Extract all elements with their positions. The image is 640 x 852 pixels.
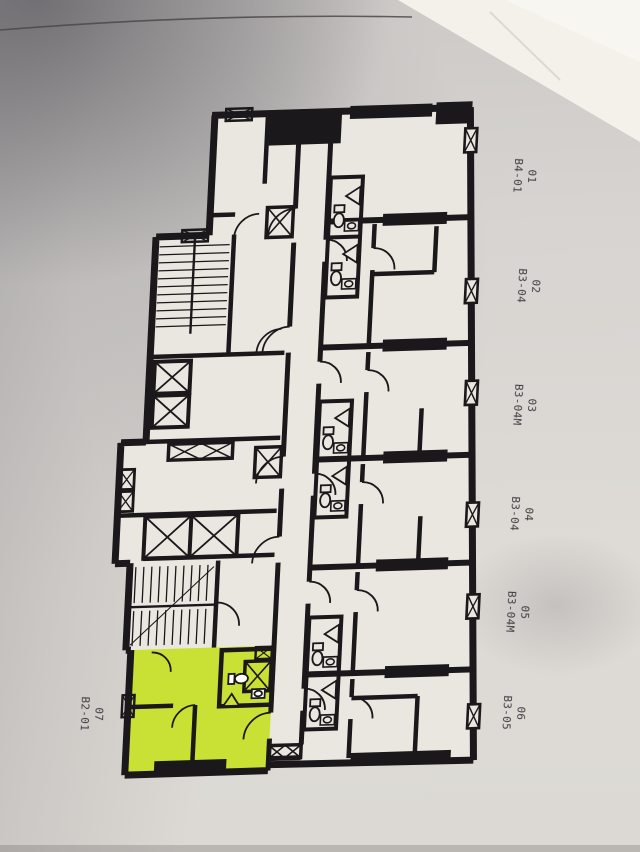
unit-number: 06: [513, 706, 528, 721]
unit-number: 01: [524, 169, 539, 184]
unit-type: B3-04M: [509, 384, 525, 426]
unit-label-05: 05 B3-04M: [502, 591, 533, 634]
unit-type: B2-01: [76, 696, 91, 731]
unit-type: B3-04: [513, 268, 529, 303]
highlighted-unit-fill: [125, 646, 274, 773]
unit-type: B4-01: [509, 158, 525, 193]
floor-plan-photo: 01 B4-01 02 B3-04 03 B3-04M 04 B3-04 05 …: [0, 0, 640, 852]
table-edge-shadow: [0, 845, 640, 852]
unit-number: 05: [517, 605, 532, 620]
unit-type: B3-05: [498, 695, 514, 730]
unit-label-04: 04 B3-04: [506, 496, 536, 532]
unit-label-01: 01 B4-01: [509, 158, 539, 194]
unit-type: B3-04: [506, 496, 522, 531]
unit-label-07-highlighted: 07 B2-01: [76, 696, 106, 732]
unit-number: 04: [521, 507, 536, 522]
unit-type: B3-04M: [502, 591, 518, 633]
unit-label-02: 02 B3-04: [513, 268, 543, 304]
unit-number: 03: [524, 398, 539, 413]
unit-number: 02: [528, 279, 543, 294]
unit-number: 07: [91, 707, 106, 721]
unit-label-03: 03 B3-04M: [509, 384, 540, 427]
unit-label-06: 06 B3-05: [498, 695, 528, 731]
